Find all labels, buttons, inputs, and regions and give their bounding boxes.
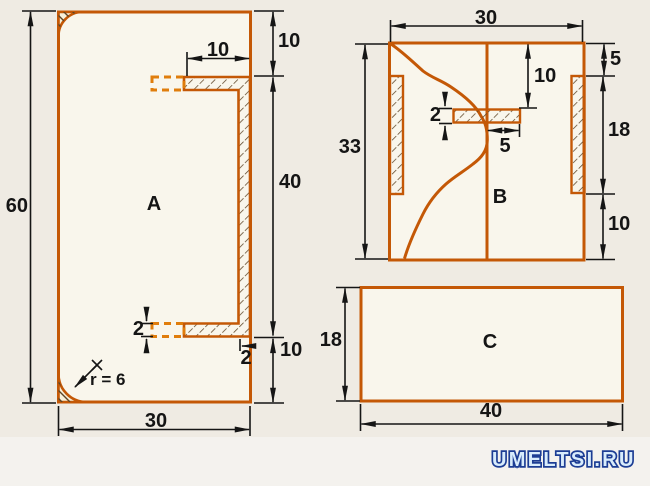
svg-text:A: A: [147, 193, 161, 215]
svg-text:30: 30: [475, 7, 497, 29]
svg-text:UMELTSI.RU: UMELTSI.RU: [492, 449, 635, 471]
svg-text:18: 18: [320, 329, 342, 351]
svg-text:40: 40: [279, 171, 301, 193]
svg-text:5: 5: [610, 48, 621, 70]
svg-text:10: 10: [534, 65, 556, 87]
svg-text:30: 30: [145, 410, 167, 432]
svg-text:r = 6: r = 6: [90, 370, 125, 389]
svg-text:60: 60: [6, 195, 28, 217]
svg-text:10: 10: [207, 39, 229, 61]
svg-text:33: 33: [339, 136, 361, 158]
svg-text:2: 2: [430, 104, 441, 126]
svg-text:5: 5: [499, 135, 510, 157]
svg-text:10: 10: [278, 30, 300, 52]
svg-text:10: 10: [280, 339, 302, 361]
svg-text:10: 10: [608, 213, 630, 235]
svg-text:C: C: [483, 331, 497, 353]
svg-text:2: 2: [240, 347, 251, 369]
svg-text:40: 40: [480, 400, 502, 422]
svg-text:18: 18: [608, 119, 630, 141]
svg-text:B: B: [493, 186, 507, 208]
svg-text:2: 2: [133, 318, 144, 340]
